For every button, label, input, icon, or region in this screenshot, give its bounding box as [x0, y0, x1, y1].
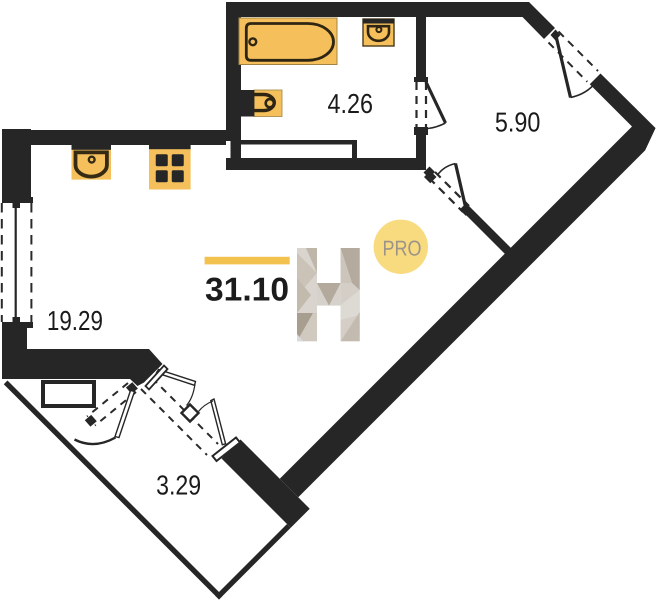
svg-text:PRO: PRO — [383, 237, 422, 261]
svg-text:31.10: 31.10 — [205, 270, 289, 307]
svg-text:19.29: 19.29 — [47, 305, 103, 336]
svg-text:4.26: 4.26 — [328, 88, 374, 119]
svg-text:3.29: 3.29 — [156, 469, 201, 500]
svg-text:5.90: 5.90 — [495, 107, 541, 138]
